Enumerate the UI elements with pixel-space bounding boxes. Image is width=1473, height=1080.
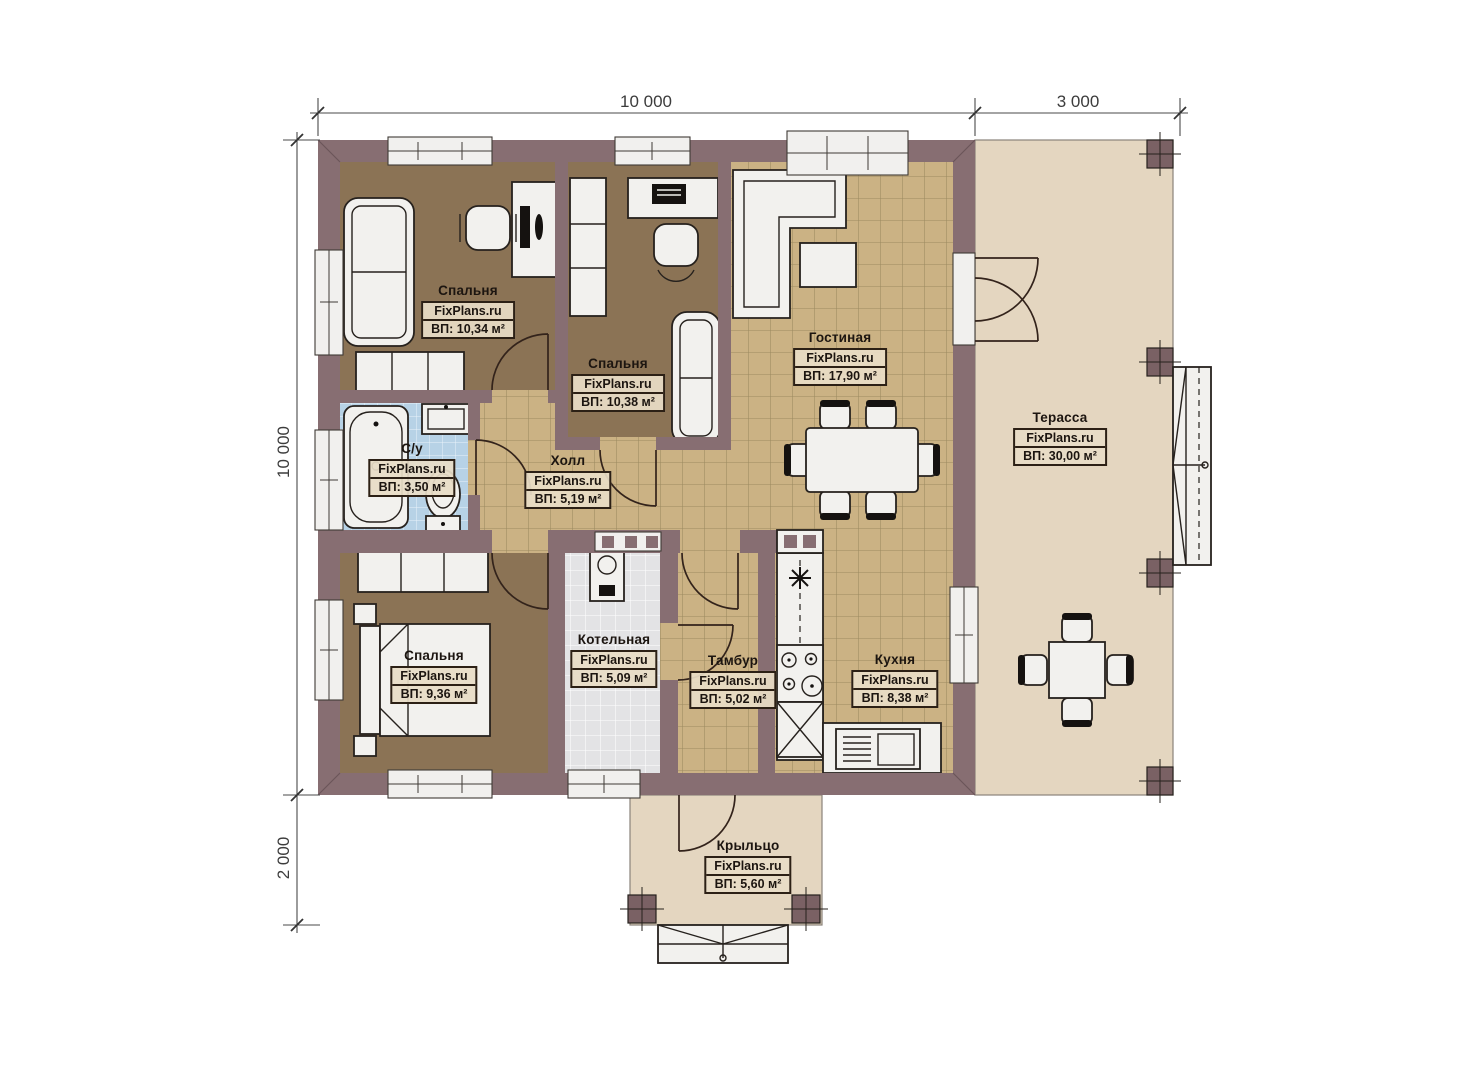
room-name: Тамбур: [689, 653, 776, 668]
bedroom3-wardrobe: [358, 550, 488, 592]
room-label-vestibule: Тамбур FixPlans.ru ВП: 5,02 м²: [689, 653, 776, 709]
terrace-door-opening: [953, 253, 975, 345]
watermark-fixplans: FixPlans.ru: [853, 672, 936, 690]
room-label-kitchen: Кухня FixPlans.ru ВП: 8,38 м²: [851, 652, 938, 708]
window-bedroom2-top: [615, 137, 690, 165]
room-label-hall: Холл FixPlans.ru ВП: 5,19 м²: [524, 453, 611, 509]
room-name: Крыльцо: [704, 838, 791, 853]
room-label-bedroom-3: Спальня FixPlans.ru ВП: 9,36 м²: [390, 648, 477, 704]
floor-plan-page: 10 000 3 000 10 000 2 000 Спальня FixPla…: [0, 0, 1473, 1080]
dimension-top-main: 10 000: [620, 92, 672, 112]
room-label-bathroom: С/у FixPlans.ru ВП: 3,50 м²: [368, 441, 455, 497]
room-label-bedroom-1: Спальня FixPlans.ru ВП: 10,34 м²: [421, 283, 515, 339]
window-boiler-bottom: [568, 770, 640, 798]
room-label-terrace: Терасса FixPlans.ru ВП: 30,00 м²: [1013, 410, 1107, 466]
room-name: Кухня: [851, 652, 938, 667]
kitchen-sink: [789, 567, 811, 589]
room-info-box: FixPlans.ru ВП: 8,38 м²: [851, 670, 938, 708]
kitchen-dishwasher: [777, 702, 823, 757]
room-info-box: FixPlans.ru ВП: 9,36 м²: [390, 666, 477, 704]
watermark-fixplans: FixPlans.ru: [691, 673, 774, 691]
boiler-unit: [590, 551, 624, 601]
room-info-box: FixPlans.ru ВП: 3,50 м²: [368, 459, 455, 497]
watermark-fixplans: FixPlans.ru: [572, 652, 655, 670]
bedroom2-sofa: [672, 312, 720, 444]
room-info-box: FixPlans.ru ВП: 5,60 м²: [704, 856, 791, 894]
room-name: Гостиная: [793, 330, 887, 345]
room-area: ВП: 5,09 м²: [572, 670, 655, 686]
dimension-left-porch: 2 000: [274, 837, 294, 880]
watermark-fixplans: FixPlans.ru: [423, 303, 513, 321]
room-name: С/у: [368, 441, 455, 456]
room-name: Холл: [524, 453, 611, 468]
room-area: ВП: 17,90 м²: [795, 368, 885, 384]
watermark-fixplans: FixPlans.ru: [392, 668, 475, 686]
window-kitchen-right: [950, 587, 978, 683]
room-area: ВП: 5,02 м²: [691, 691, 774, 707]
room-name: Терасса: [1013, 410, 1107, 425]
room-info-box: FixPlans.ru ВП: 10,38 м²: [571, 374, 665, 412]
window-bedroom3-bottom: [388, 770, 492, 798]
kitchen-bottom-counter: [823, 723, 941, 773]
watermark-fixplans: FixPlans.ru: [526, 473, 609, 491]
room-area: ВП: 9,36 м²: [392, 686, 475, 702]
room-area: ВП: 10,34 м²: [423, 321, 513, 337]
window-bathroom-left: [315, 430, 343, 530]
window-living-top: [787, 131, 908, 175]
room-label-living-room: Гостиная FixPlans.ru ВП: 17,90 м²: [793, 330, 887, 386]
bedroom1-dresser: [356, 352, 464, 392]
room-info-box: FixPlans.ru ВП: 30,00 м²: [1013, 428, 1107, 466]
dimension-left-main: 10 000: [274, 426, 294, 478]
bedroom1-sofa: [344, 198, 414, 346]
room-area: ВП: 8,38 м²: [853, 690, 936, 706]
window-bedroom1-top: [388, 137, 492, 165]
room-info-box: FixPlans.ru ВП: 5,09 м²: [570, 650, 657, 688]
bedroom1-chair: [460, 206, 516, 250]
room-name: Спальня: [421, 283, 515, 298]
bedroom2-desk: [628, 178, 718, 218]
bedroom1-desk: [512, 182, 556, 277]
bathroom-sink: [422, 404, 470, 434]
room-info-box: FixPlans.ru ВП: 17,90 м²: [793, 348, 887, 386]
watermark-fixplans: FixPlans.ru: [706, 858, 789, 876]
room-name: Спальня: [571, 356, 665, 371]
room-name: Спальня: [390, 648, 477, 663]
terrace-stairs: [1173, 367, 1211, 565]
floor-plan-drawing: [0, 0, 1473, 1080]
room-area: ВП: 5,19 м²: [526, 491, 609, 507]
kitchen-stove: [777, 645, 823, 702]
room-label-bedroom-2: Спальня FixPlans.ru ВП: 10,38 м²: [571, 356, 665, 412]
bedroom2-wardrobe: [570, 178, 606, 316]
window-bedroom1-left: [315, 250, 343, 355]
coffee-table: [800, 243, 856, 287]
room-info-box: FixPlans.ru ВП: 10,34 м²: [421, 301, 515, 339]
room-label-boiler-room: Котельная FixPlans.ru ВП: 5,09 м²: [570, 632, 657, 688]
room-area: ВП: 30,00 м²: [1015, 448, 1105, 464]
room-name: Котельная: [570, 632, 657, 647]
watermark-fixplans: FixPlans.ru: [573, 376, 663, 394]
porch-steps: [658, 925, 788, 963]
room-area: ВП: 3,50 м²: [370, 479, 453, 495]
window-bedroom3-left: [315, 600, 343, 700]
room-label-porch: Крыльцо FixPlans.ru ВП: 5,60 м²: [704, 838, 791, 894]
dimension-top-terrace: 3 000: [1057, 92, 1100, 112]
room-info-box: FixPlans.ru ВП: 5,02 м²: [689, 671, 776, 709]
watermark-fixplans: FixPlans.ru: [795, 350, 885, 368]
room-area: ВП: 10,38 м²: [573, 394, 663, 410]
room-info-box: FixPlans.ru ВП: 5,19 м²: [524, 471, 611, 509]
room-area: ВП: 5,60 м²: [706, 876, 789, 892]
watermark-fixplans: FixPlans.ru: [370, 461, 453, 479]
terrace-slab: [975, 132, 1211, 803]
watermark-fixplans: FixPlans.ru: [1015, 430, 1105, 448]
